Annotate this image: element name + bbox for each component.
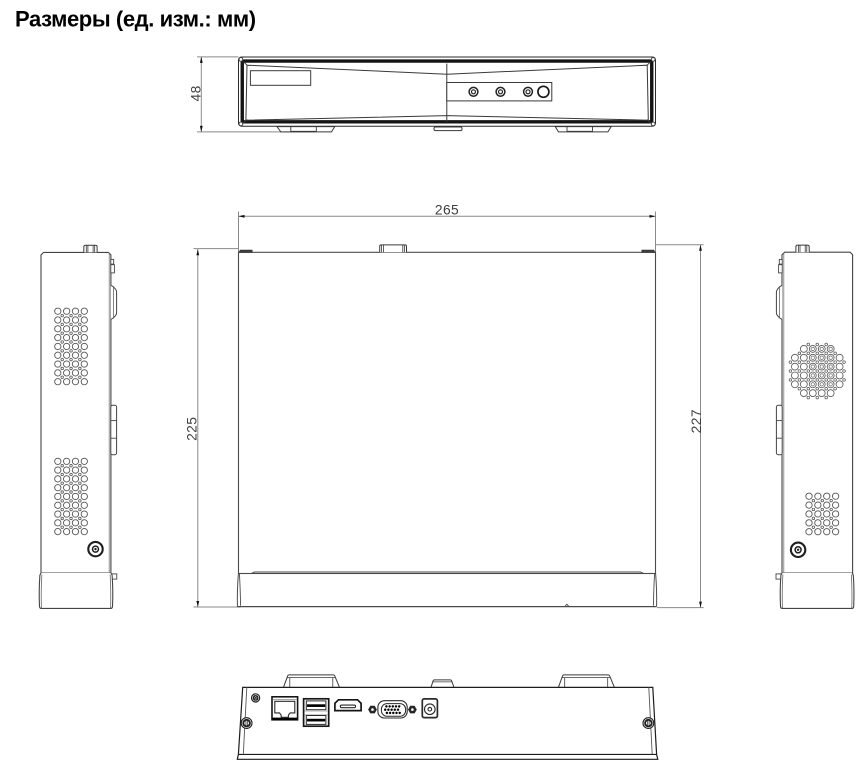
svg-text:Размеры (ед. изм.: мм): Размеры (ед. изм.: мм) bbox=[15, 6, 256, 31]
svg-text:265: 265 bbox=[435, 203, 459, 218]
svg-text:227: 227 bbox=[689, 409, 704, 433]
svg-text:48: 48 bbox=[188, 85, 203, 101]
svg-text:225: 225 bbox=[184, 417, 199, 441]
